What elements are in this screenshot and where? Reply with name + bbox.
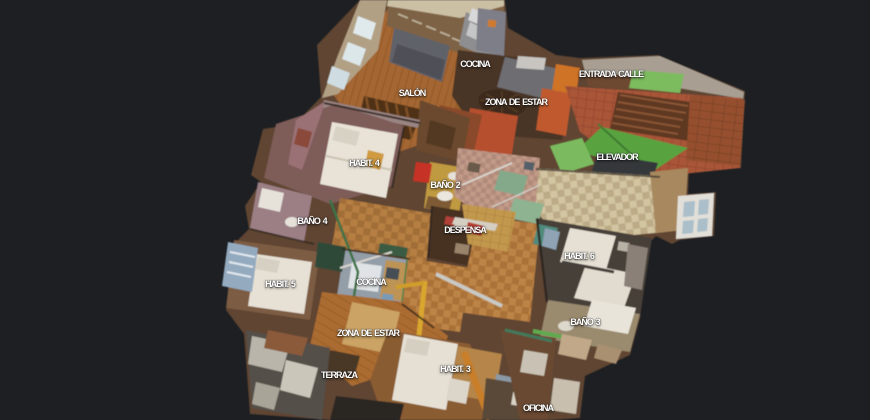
- svg-text:ZONA DE ESTAR: ZONA DE ESTAR: [337, 328, 400, 338]
- svg-text:OFICINA: OFICINA: [523, 403, 554, 413]
- svg-text:HABIT. 5: HABIT. 5: [265, 279, 296, 289]
- svg-text:COCINA: COCINA: [460, 59, 491, 69]
- svg-text:HABIT. 6: HABIT. 6: [564, 251, 595, 261]
- svg-text:ENTRADA CALLE: ENTRADA CALLE: [579, 69, 644, 79]
- svg-text:ZONA DE ESTAR: ZONA DE ESTAR: [485, 97, 548, 107]
- svg-text:COCINA: COCINA: [356, 277, 387, 287]
- svg-text:BAÑO 4: BAÑO 4: [297, 216, 327, 226]
- svg-text:ELEVADOR: ELEVADOR: [596, 152, 639, 162]
- svg-text:HABIT. 3: HABIT. 3: [440, 364, 471, 374]
- svg-text:HABIT. 4: HABIT. 4: [349, 158, 380, 168]
- svg-text:BAÑO 2: BAÑO 2: [430, 180, 460, 190]
- svg-text:SALÓN: SALÓN: [399, 87, 426, 98]
- svg-text:DESPENSA: DESPENSA: [444, 225, 487, 235]
- svg-text:BAÑO 3: BAÑO 3: [570, 317, 600, 327]
- svg-text:TERRAZA: TERRAZA: [321, 370, 358, 380]
